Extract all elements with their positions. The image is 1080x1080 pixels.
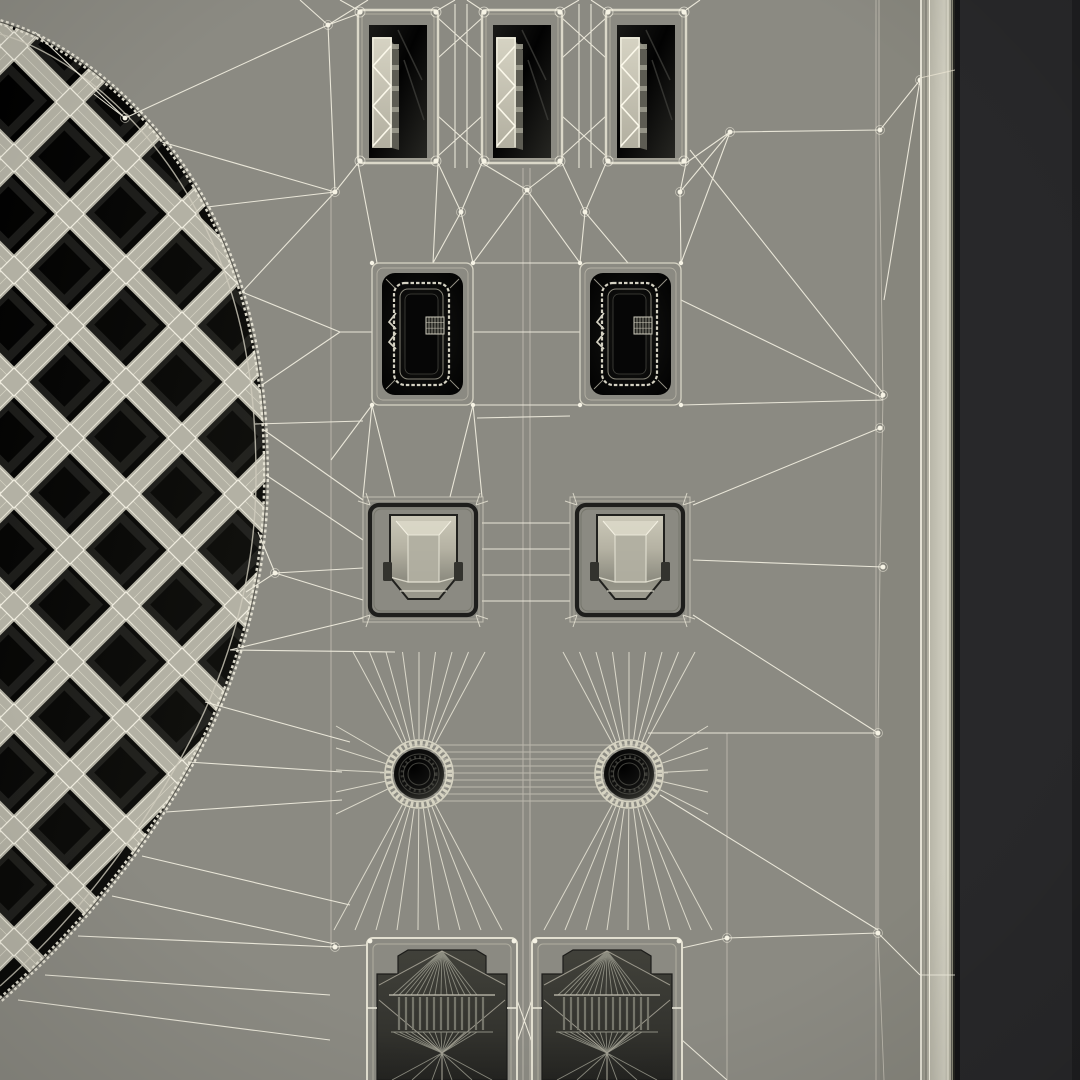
- firewire-port-2: [578, 261, 683, 407]
- panel-side-edge: [920, 0, 955, 1080]
- case-side-dark: [955, 0, 1080, 1080]
- render-viewport: [0, 0, 1080, 1080]
- firewire-port-1: [370, 261, 475, 407]
- usb-tab: [620, 37, 640, 148]
- usb-port-row: [355, 7, 689, 166]
- usb-tab: [496, 37, 516, 148]
- usb-tab: [372, 37, 392, 148]
- wireframe-render: [0, 0, 1080, 1080]
- panel-shade: [880, 0, 922, 1080]
